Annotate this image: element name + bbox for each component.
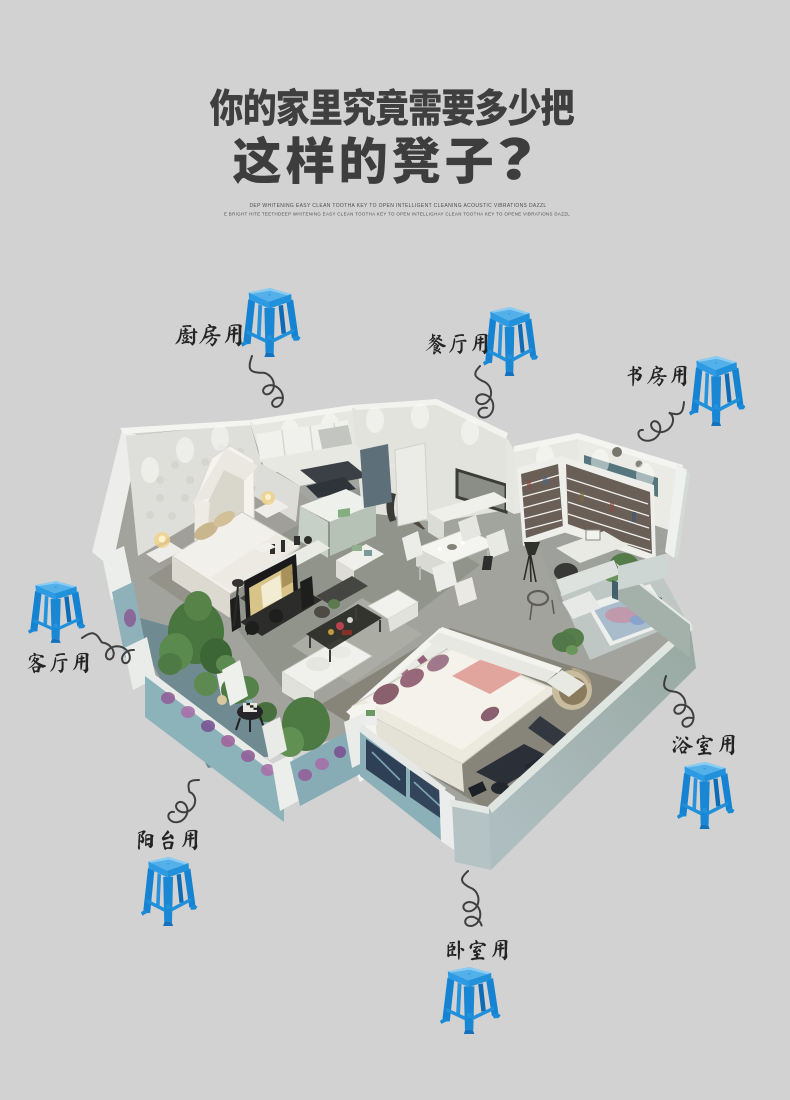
svg-text:E BRIGHT HITE TEETHDEEP WHITEN: E BRIGHT HITE TEETHDEEP WHITENING EASY C… [224, 212, 570, 217]
svg-text:DEP WHITENING EASY CLEAN TOOTH: DEP WHITENING EASY CLEAN TOOTHA KEY TO O… [249, 203, 546, 209]
